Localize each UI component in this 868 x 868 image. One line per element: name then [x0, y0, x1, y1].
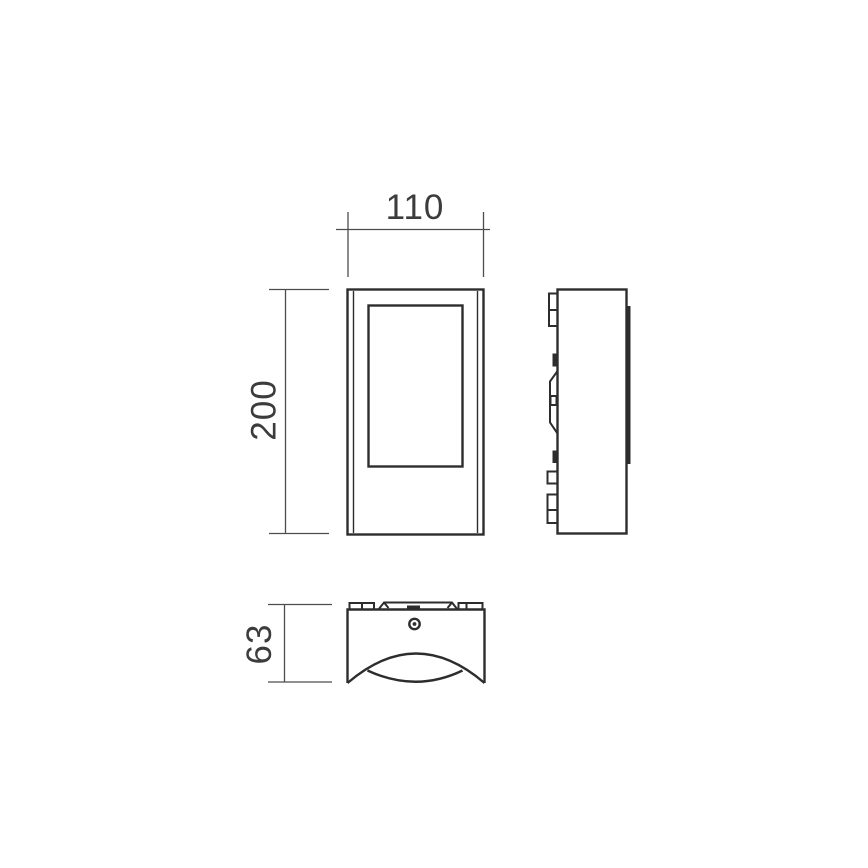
dimension-width: 110	[336, 188, 490, 277]
bottom-view-curved-face	[348, 654, 485, 684]
side-view-outline	[558, 290, 627, 534]
technical-drawing-canvas: 110 200 63	[0, 0, 868, 868]
bottom-view-tab-middle-slot	[407, 606, 420, 610]
mounting-bracket-bottom	[548, 495, 558, 524]
dimension-depth-label: 63	[240, 624, 279, 665]
dimension-height: 200	[245, 290, 330, 534]
bottom-view-lens-arc	[368, 671, 463, 682]
side-view	[548, 290, 631, 534]
mounting-tab-lower	[553, 451, 558, 464]
bottom-view	[348, 603, 485, 684]
screw-center-dot	[413, 622, 417, 626]
dimension-depth: 63	[240, 605, 332, 683]
front-view	[348, 290, 484, 535]
dimension-height-label: 200	[245, 379, 284, 440]
drawing-svg: 110 200 63	[0, 0, 868, 868]
mounting-boss-screw-slot	[551, 396, 557, 405]
mounting-tab-upper	[553, 354, 558, 367]
front-view-light-window	[369, 306, 463, 467]
dimension-width-label: 110	[386, 188, 445, 227]
mounting-bracket-small	[548, 472, 558, 484]
